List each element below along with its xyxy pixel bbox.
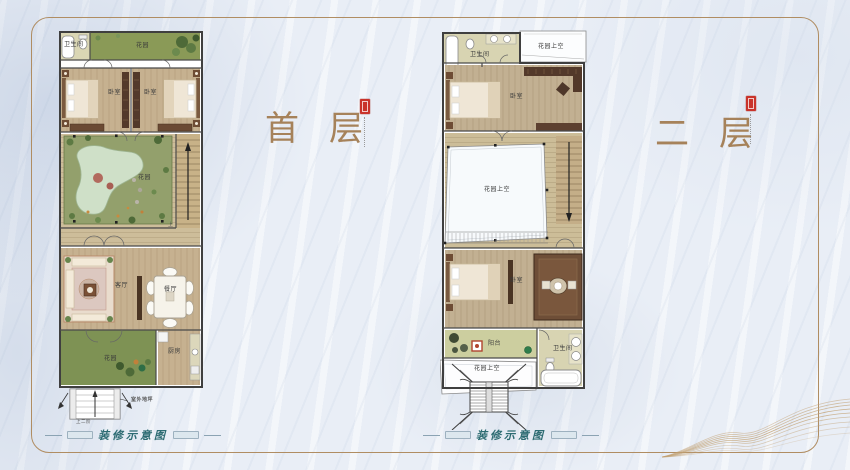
floorplan-second-floor: 卫生间 花园上空 卧室 花园上空 卧室 阳台 卫生间 花园上空	[440, 30, 592, 430]
caption-line	[45, 435, 62, 436]
sofa	[66, 270, 74, 308]
decorative-wave-lines	[662, 389, 850, 464]
room-label-bedroom-top: 卧室	[510, 94, 523, 100]
sideboard	[137, 276, 142, 320]
room-label-living: 客厅	[115, 283, 128, 289]
cabinet-strip	[536, 123, 582, 131]
tea-room	[534, 254, 582, 320]
room-label-void-top: 花园上空	[538, 44, 564, 50]
room-label-bedroom-bottom: 卧室	[510, 278, 523, 284]
room-label-garden-top: 花园	[136, 43, 149, 49]
sofa	[72, 258, 106, 266]
room-label-bath-top: 卫生间	[470, 52, 490, 58]
caption-pill	[551, 431, 577, 439]
cushion	[568, 281, 576, 289]
courtyard-garden	[64, 135, 172, 225]
room-label-balcony: 阳台	[488, 341, 501, 347]
room-label-kitchen: 厨房	[168, 349, 181, 355]
stove-icon	[191, 366, 199, 374]
stairs-up	[176, 134, 200, 228]
plant-icon	[525, 347, 532, 354]
room-label-void-middle: 花园上空	[484, 187, 510, 193]
bathroom-bottom	[539, 330, 582, 386]
stairs-up-label: 上	[168, 223, 174, 228]
sink-icon	[572, 352, 581, 361]
outdoor-ground-label: 室外地坪	[131, 398, 153, 403]
room-label-void-bottom: 花园上空	[474, 366, 500, 372]
caption-pill	[173, 431, 199, 439]
floorplan-second-floor-drawing	[440, 30, 592, 430]
caption-pill	[445, 431, 471, 439]
entry-steps	[58, 389, 132, 419]
second-floor-caption: 装修示意图	[421, 428, 601, 442]
floorplan-first-floor-drawing	[58, 30, 204, 428]
room-label-bedroom-left: 卧室	[108, 90, 121, 96]
caption-line	[582, 435, 599, 436]
caption-line	[423, 435, 440, 436]
entry-steps-label: 上二阶	[76, 421, 91, 426]
cushion	[542, 281, 550, 289]
wardrobe-strip	[524, 67, 582, 76]
caption-text: 装修示意图	[98, 427, 168, 443]
fridge-icon	[158, 332, 168, 342]
dresser-left	[70, 124, 104, 131]
red-seal-stamp	[746, 96, 756, 111]
room-label-garden-bottom: 花园	[104, 356, 117, 362]
seal-caption-strip	[364, 117, 367, 147]
caption-text: 装修示意图	[476, 427, 546, 443]
sink-icon	[504, 36, 511, 43]
room-label-courtyard: 花园	[138, 175, 151, 181]
first-floor-caption: 装修示意图	[43, 428, 223, 442]
sofa	[72, 314, 106, 321]
room-label-dining: 餐厅	[164, 287, 177, 293]
seal-caption-strip	[750, 114, 753, 144]
toilet-icon	[466, 39, 474, 49]
brochure-floorplan-page: { "floor1": { "title": "首层", "caption": …	[0, 0, 850, 470]
floorplan-first-floor: 卫生间 花园 卧室 卧室 花园 上 客厅 餐厅 花园 厨房 室外地坪 上二阶	[58, 30, 204, 428]
kitchen	[158, 330, 200, 385]
garden-void-middle	[444, 143, 549, 245]
room-label-bath-bottom: 卫生间	[553, 346, 573, 352]
sink-icon	[491, 36, 498, 43]
dresser-right	[158, 124, 192, 131]
caption-line	[204, 435, 221, 436]
room-label-bedroom-right: 卧室	[144, 90, 157, 96]
stairs-down	[556, 136, 582, 224]
first-floor-title: 首层	[265, 112, 393, 146]
bathtub-icon	[541, 370, 581, 386]
sink-icon	[192, 349, 198, 355]
second-floor-title: 二层	[655, 117, 783, 151]
red-seal-stamp	[360, 99, 370, 114]
caption-pill	[67, 431, 93, 439]
living-room-set	[64, 256, 114, 322]
room-label-bath: 卫生间	[64, 42, 84, 48]
